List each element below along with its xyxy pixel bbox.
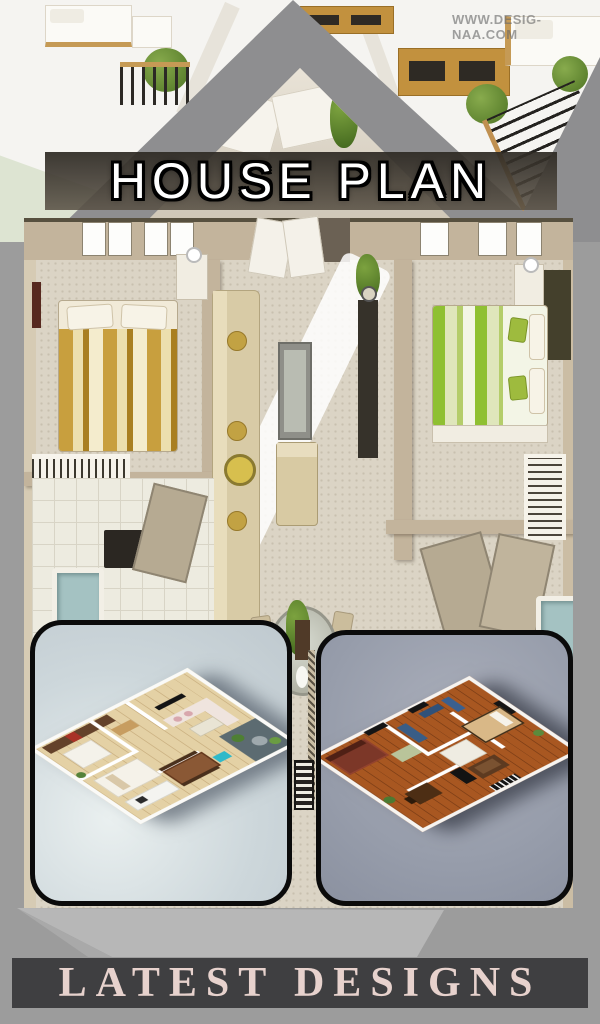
window-grid	[489, 773, 521, 791]
desk	[111, 720, 140, 736]
blue-wardrobe	[441, 697, 466, 712]
plan-card-light[interactable]	[30, 620, 292, 906]
plant	[531, 728, 547, 737]
plant	[381, 795, 398, 805]
isometric-plan-wood	[316, 676, 573, 832]
tv	[154, 693, 186, 710]
isometric-plan-light	[30, 668, 292, 824]
plan-card-wood[interactable]	[316, 630, 573, 906]
footer-banner-label: LATEST DESIGNS	[59, 959, 542, 1007]
footer-banner: LATEST DESIGNS	[12, 958, 588, 1008]
window-frame	[364, 722, 389, 736]
